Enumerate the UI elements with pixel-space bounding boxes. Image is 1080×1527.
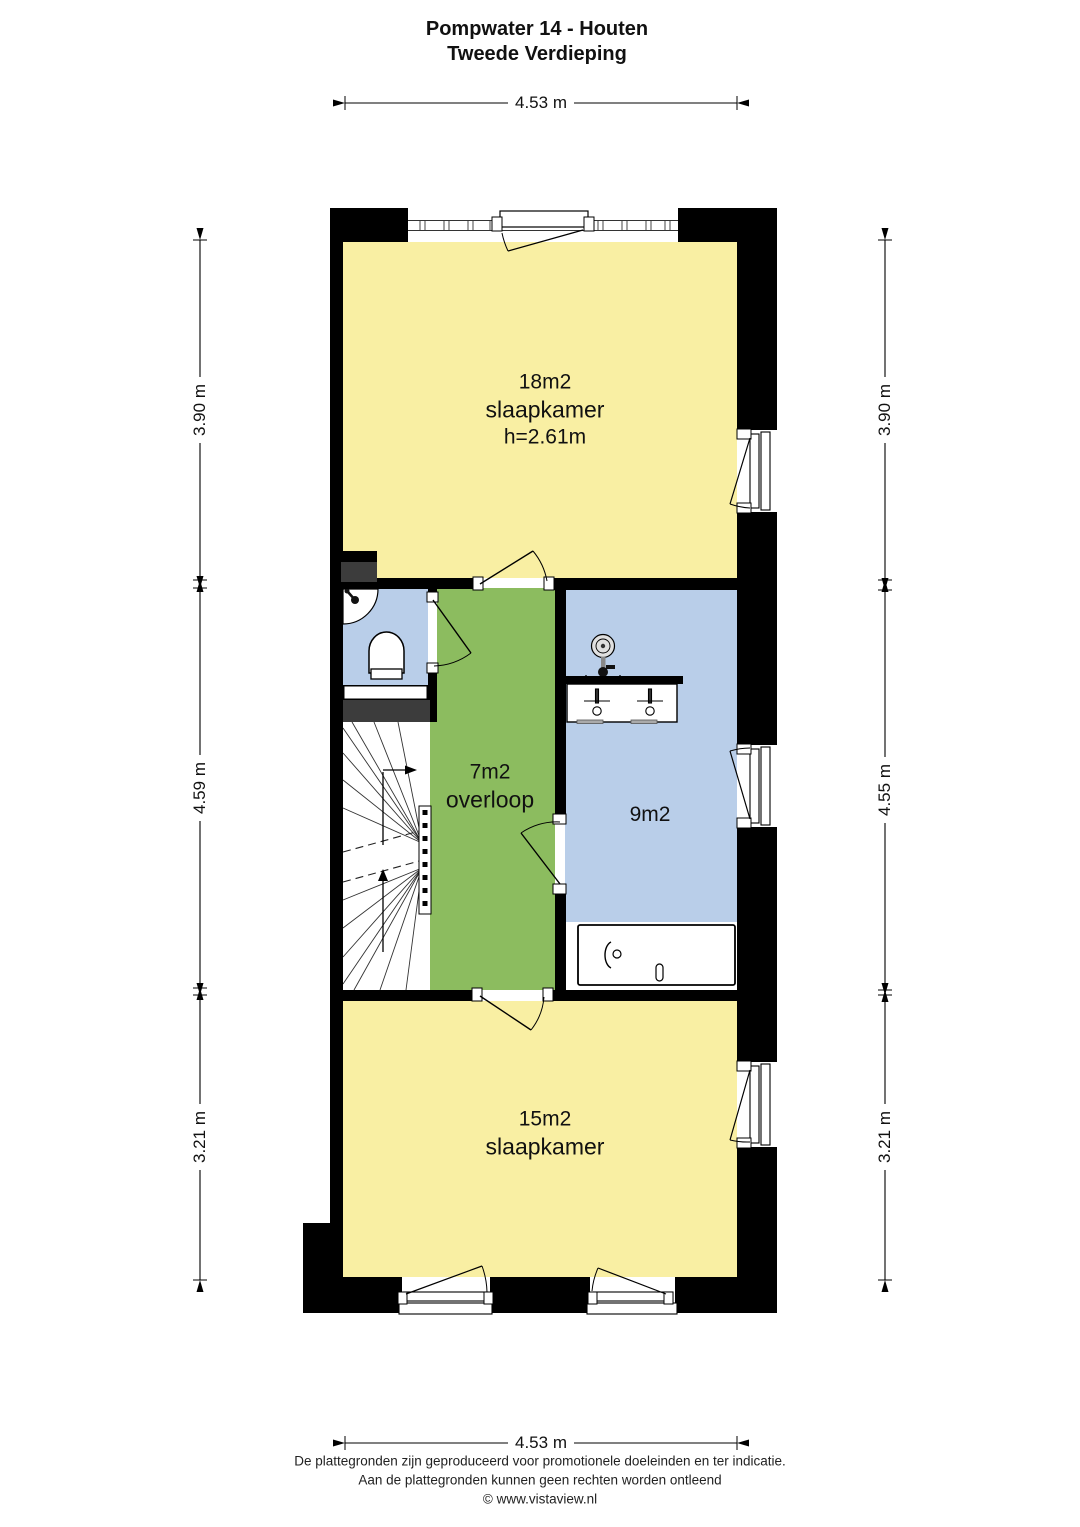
room-area: 18m2 <box>486 370 605 396</box>
title-floor: Tweede Verdieping <box>426 42 648 67</box>
dim-left-top: 3.90 m <box>190 377 210 443</box>
dim-left-bottom: 3.21 m <box>190 1104 210 1170</box>
room-ceiling-height: h=2.61m <box>486 424 605 450</box>
footer-line-1: De plattegronden zijn geproduceerd voor … <box>294 1453 786 1472</box>
floorplan-drawing <box>0 0 1080 1527</box>
stairs-railing <box>419 806 431 914</box>
footer-line-2: Aan de plattegronden kunnen geen rechten… <box>294 1472 786 1491</box>
footer-disclaimer: De plattegronden zijn geproduceerd voor … <box>294 1453 786 1510</box>
room-type: slaapkamer <box>486 396 605 425</box>
dim-right-top: 3.90 m <box>875 377 895 443</box>
toilet-icon <box>369 632 404 679</box>
label-bedroom-large: 18m2 slaapkamer h=2.61m <box>486 370 605 451</box>
label-bedroom-small: 15m2 slaapkamer <box>486 1107 605 1162</box>
floorplan-page: Pompwater 14 - Houten Tweede Verdieping … <box>0 0 1080 1527</box>
footer-copyright: © www.vistaview.nl <box>294 1490 786 1509</box>
room-bathroom <box>565 589 737 922</box>
dim-right-bottom: 3.21 m <box>875 1104 895 1170</box>
dim-left-middle: 4.59 m <box>190 755 210 821</box>
room-area: 15m2 <box>486 1107 605 1133</box>
dim-top: 4.53 m <box>508 93 574 113</box>
label-bathroom: 9m2 <box>630 802 671 828</box>
dim-bottom: 4.53 m <box>508 1433 574 1453</box>
label-landing: 7m2 overloop <box>446 760 534 815</box>
title-address: Pompwater 14 - Houten <box>426 17 648 42</box>
double-washbasin-icon <box>567 684 677 724</box>
room-type: overloop <box>446 786 534 815</box>
bathtub-icon <box>578 925 735 985</box>
room-type: slaapkamer <box>486 1133 605 1162</box>
room-area: 7m2 <box>446 760 534 786</box>
stairwell-area <box>343 722 430 990</box>
toilet-threshold <box>344 686 428 700</box>
page-title: Pompwater 14 - Houten Tweede Verdieping <box>426 17 648 67</box>
room-area: 9m2 <box>630 802 671 828</box>
dim-right-middle: 4.55 m <box>875 757 895 823</box>
